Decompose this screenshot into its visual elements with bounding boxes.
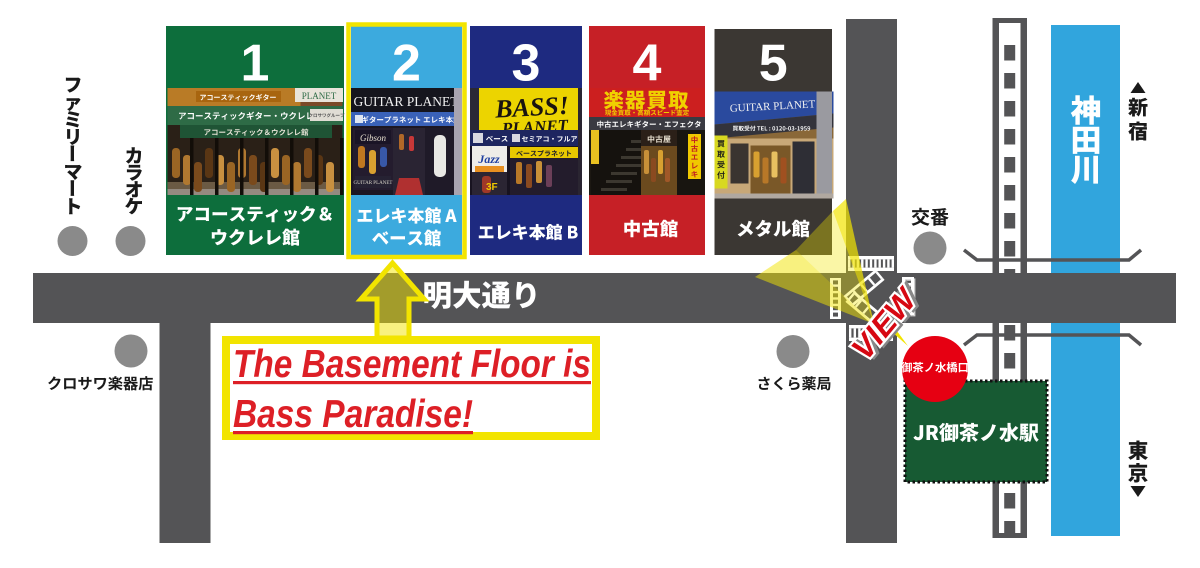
svg-text:2: 2 [392, 35, 421, 93]
svg-text:PLANET: PLANET [302, 91, 337, 101]
svg-text:GUITAR PLANET: GUITAR PLANET [353, 94, 459, 109]
svg-text:5: 5 [759, 35, 788, 93]
svg-text:3F: 3F [486, 182, 498, 193]
svg-text:1: 1 [241, 35, 270, 93]
svg-text:4: 4 [633, 35, 662, 93]
svg-text:3: 3 [512, 35, 541, 93]
svg-text:GUITAR PLANET: GUITAR PLANET [354, 181, 393, 186]
svg-text:Jazz: Jazz [477, 152, 500, 166]
svg-text:Bass Paradise!: Bass Paradise! [233, 393, 473, 436]
svg-text:Gibson: Gibson [360, 133, 387, 143]
svg-text:The Basement Floor is: The Basement Floor is [233, 343, 591, 386]
